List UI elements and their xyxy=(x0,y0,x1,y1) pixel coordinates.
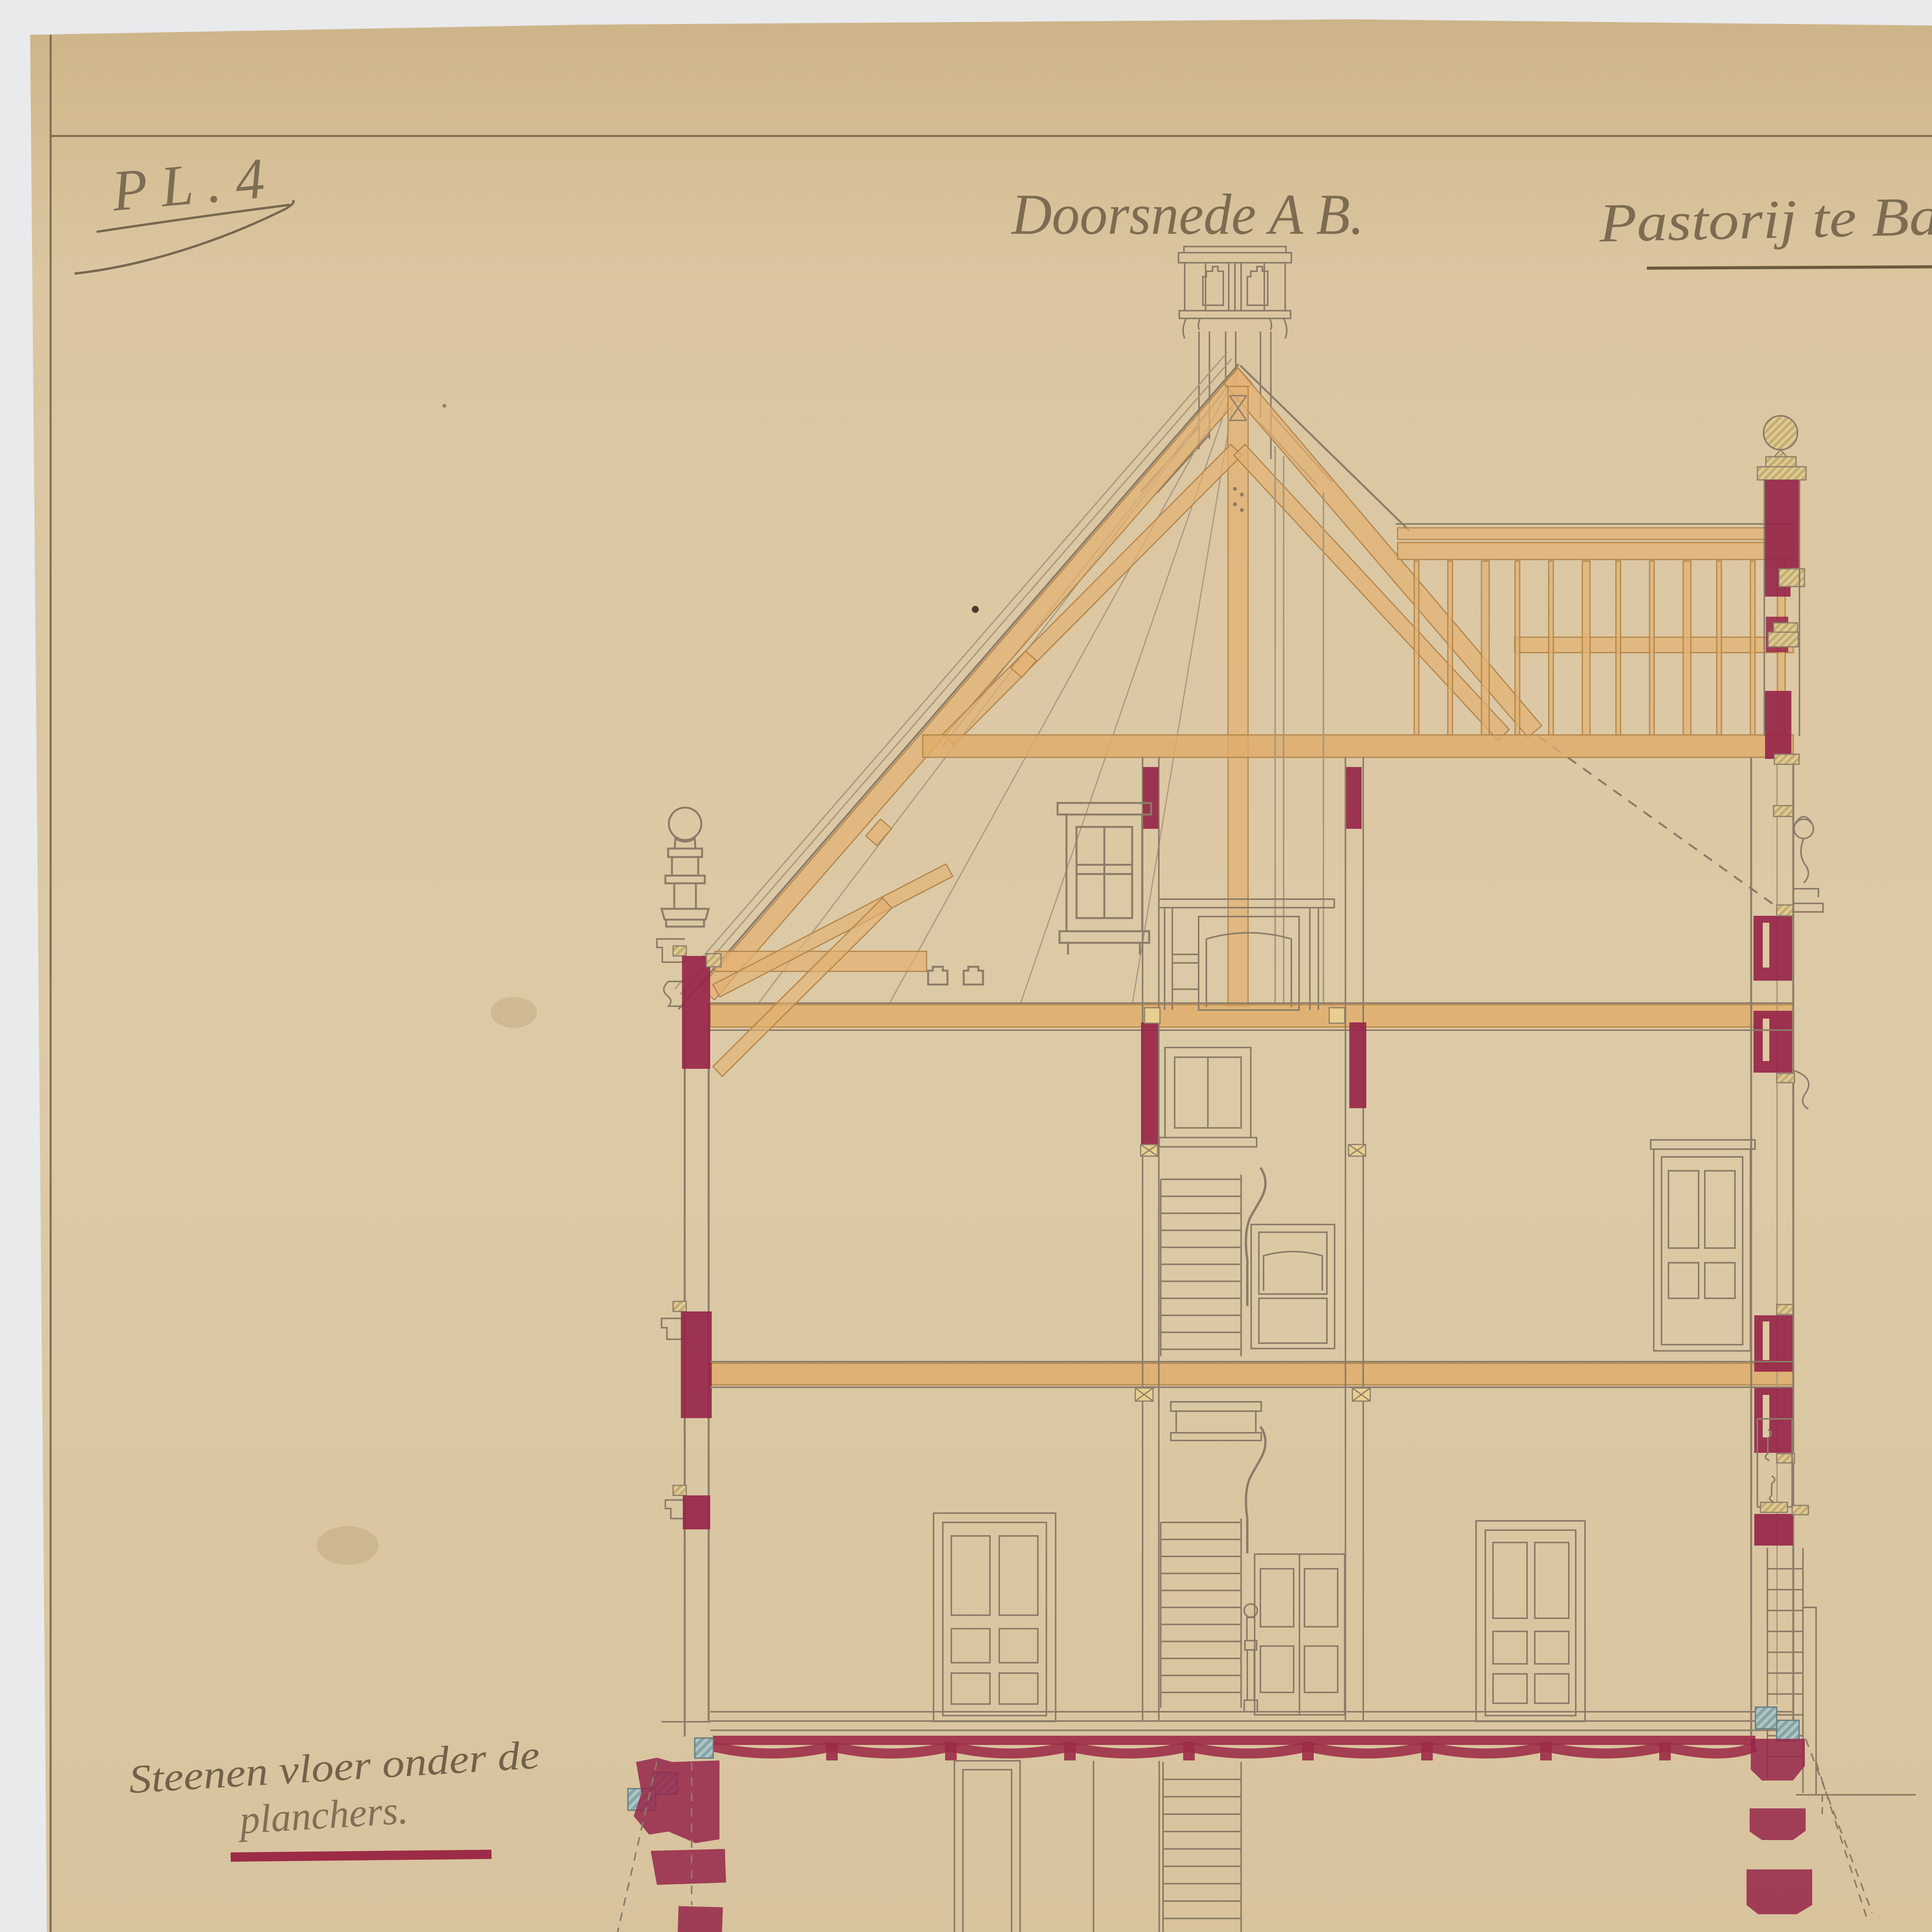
svg-text:Doorsnede A B.: Doorsnede A B. xyxy=(1011,182,1364,247)
